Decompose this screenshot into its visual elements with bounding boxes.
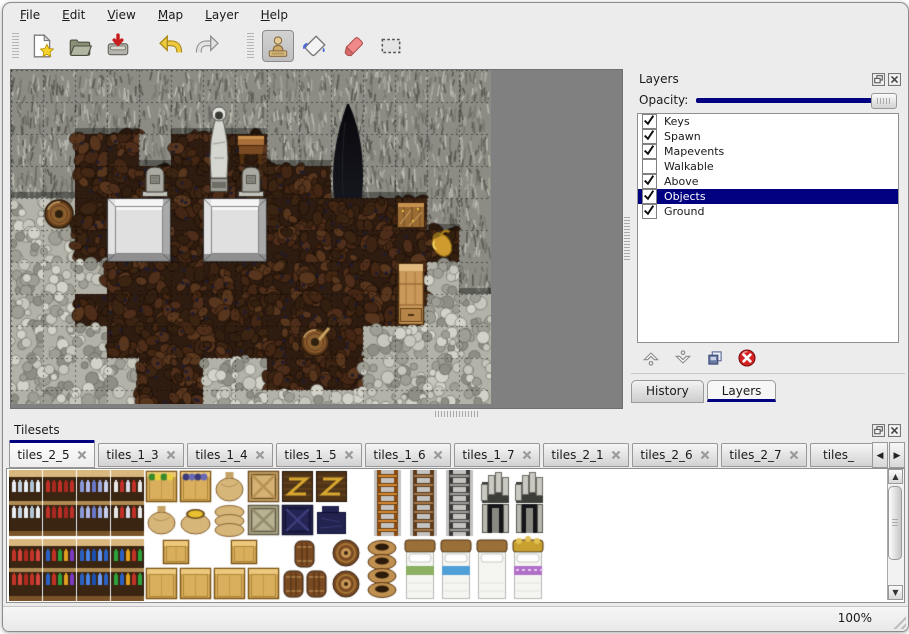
close-icon[interactable] — [888, 424, 901, 437]
select-tool-button[interactable] — [376, 30, 408, 62]
tab-close-icon[interactable] — [700, 450, 710, 460]
eraser-tool-icon — [340, 33, 368, 59]
eraser-tool-button[interactable] — [338, 30, 370, 62]
layer-row-spawn[interactable]: Spawn — [638, 129, 898, 144]
tilesets-panel: Tilesets tiles_2_5tiles_1_3tiles_1_4tile… — [6, 420, 905, 607]
float-icon[interactable] — [872, 73, 885, 86]
tab-label: tiles_1_7 — [462, 448, 514, 462]
scroll-tabs-right-icon[interactable]: ▶ — [889, 442, 905, 468]
tab-label: tiles_2_6 — [640, 448, 692, 462]
resize-grip[interactable] — [889, 612, 906, 629]
tab-close-icon[interactable] — [789, 450, 799, 460]
toolbar-grip[interactable] — [12, 33, 19, 59]
tileset-tab-tiles_1_5[interactable]: tiles_1_5 — [276, 443, 362, 467]
fill-tool-button[interactable] — [300, 30, 332, 62]
tab-close-icon[interactable] — [611, 450, 621, 460]
tab-close-icon[interactable] — [522, 450, 532, 460]
opacity-slider-track[interactable] — [696, 98, 893, 103]
tab-close-icon[interactable] — [344, 450, 354, 460]
undo-button[interactable] — [155, 30, 187, 62]
save-button[interactable] — [103, 30, 135, 62]
opacity-slider-handle[interactable] — [871, 93, 897, 109]
layer-name: Walkable — [664, 160, 714, 173]
menu-view[interactable]: View — [96, 5, 146, 25]
layer-name: Spawn — [664, 130, 701, 143]
scroll-down-icon[interactable]: ▼ — [888, 585, 903, 600]
tab-label: tiles_2_5 — [17, 448, 69, 462]
tab-close-icon[interactable] — [255, 450, 265, 460]
opacity-label: Opacity: — [639, 93, 688, 107]
layer-row-keys[interactable]: Keys — [638, 114, 898, 129]
stamp-tool-button[interactable] — [262, 30, 294, 62]
tileset-tab-tiles_1_6[interactable]: tiles_1_6 — [365, 443, 451, 467]
layer-buttons — [631, 343, 905, 374]
layer-visibility-checkbox[interactable] — [642, 174, 657, 189]
move-layer-down-icon — [673, 348, 693, 368]
layer-name: Above — [664, 175, 699, 188]
horizontal-splitter-grip[interactable] — [435, 411, 479, 417]
layer-visibility-checkbox[interactable] — [642, 114, 657, 129]
menu-bar: FileEditViewMapLayerHelp — [3, 3, 908, 27]
open-folder-icon — [67, 33, 95, 59]
tileset-tab-tiles_1_4[interactable]: tiles_1_4 — [187, 443, 273, 467]
scroll-up-icon[interactable]: ▲ — [888, 469, 903, 484]
tab-close-icon[interactable] — [77, 450, 87, 460]
new-file-button[interactable] — [27, 30, 59, 62]
open-folder-button[interactable] — [65, 30, 97, 62]
tileset-tab-tiles[interactable]: tiles_ — [810, 443, 874, 467]
tileset-tab-tiles_2_7[interactable]: tiles_2_7 — [721, 443, 807, 467]
layer-visibility-checkbox[interactable] — [642, 144, 657, 159]
tab-close-icon[interactable] — [166, 450, 176, 460]
fill-tool-icon — [302, 33, 330, 59]
new-file-icon — [29, 33, 57, 59]
layer-visibility-checkbox[interactable] — [642, 204, 657, 219]
redo-icon — [195, 33, 223, 59]
layer-row-ground[interactable]: Ground — [638, 204, 898, 219]
scrollbar-thumb[interactable] — [888, 486, 902, 560]
opacity-slider[interactable] — [696, 93, 897, 107]
menu-map[interactable]: Map — [147, 5, 194, 25]
vertical-splitter[interactable] — [623, 69, 631, 409]
tileset-tab-tiles_2_6[interactable]: tiles_2_6 — [632, 443, 718, 467]
layer-visibility-checkbox[interactable] — [642, 129, 657, 144]
tilesets-panel-header: Tilesets — [6, 420, 905, 440]
layers-panel-header: Layers — [631, 69, 905, 89]
layer-visibility-checkbox[interactable] — [642, 159, 657, 174]
tab-label: tiles_ — [823, 448, 854, 462]
layer-row-objects[interactable]: Objects — [638, 189, 898, 204]
opacity-row: Opacity: — [631, 89, 905, 111]
layers-panel-title: Layers — [639, 72, 869, 86]
dock-tab-history[interactable]: History — [631, 380, 704, 403]
tab-label: tiles_1_5 — [284, 448, 336, 462]
layer-name: Objects — [664, 190, 706, 203]
tab-label: tiles_1_4 — [195, 448, 247, 462]
redo-button[interactable] — [193, 30, 225, 62]
tileset-tab-tiles_2_5[interactable]: tiles_2_5 — [9, 440, 95, 468]
duplicate-layer-icon — [705, 348, 725, 368]
tileset-tab-tiles_1_3[interactable]: tiles_1_3 — [98, 443, 184, 467]
stamp-tool-icon — [265, 33, 291, 59]
close-icon[interactable] — [888, 73, 901, 86]
tab-label: tiles_1_3 — [106, 448, 158, 462]
map-view[interactable] — [10, 69, 623, 409]
layer-row-walkable[interactable]: Walkable — [638, 159, 898, 174]
menu-edit[interactable]: Edit — [51, 5, 96, 25]
layer-row-above[interactable]: Above — [638, 174, 898, 189]
undo-icon — [157, 33, 185, 59]
tilesets-panel-title: Tilesets — [14, 423, 869, 437]
menu-layer[interactable]: Layer — [194, 5, 249, 25]
dock-tab-layers[interactable]: Layers — [707, 380, 777, 402]
delete-layer-button[interactable] — [735, 346, 759, 370]
move-layer-up-icon — [641, 348, 661, 368]
layer-list: KeysSpawnMapeventsWalkableAboveObjectsGr… — [637, 113, 899, 343]
dock-tabs: HistoryLayers — [631, 374, 905, 403]
move-layer-down-button[interactable] — [671, 346, 695, 370]
menu-file[interactable]: File — [9, 5, 51, 25]
move-layer-up-button[interactable] — [639, 346, 663, 370]
tab-close-icon[interactable] — [433, 450, 443, 460]
scroll-tabs-left-icon[interactable]: ◀ — [872, 442, 888, 468]
tab-label: tiles_1_6 — [373, 448, 425, 462]
tab-label: tiles_2_7 — [729, 448, 781, 462]
layer-visibility-checkbox[interactable] — [642, 189, 657, 204]
tileset-scrollbar[interactable]: ▲ ▼ — [887, 469, 904, 600]
toolbar-grip[interactable] — [247, 33, 254, 59]
tileset-canvas[interactable] — [9, 470, 885, 601]
app-window: FileEditViewMapLayerHelp Layers Opacity:… — [2, 2, 909, 632]
zoom-level: 100% — [838, 611, 872, 625]
float-icon[interactable] — [872, 424, 885, 437]
tileset-tab-bar: tiles_2_5tiles_1_3tiles_1_4tiles_1_5tile… — [6, 440, 905, 468]
save-icon — [105, 33, 133, 59]
layer-name: Ground — [664, 205, 704, 218]
duplicate-layer-button[interactable] — [703, 346, 727, 370]
toolbar — [3, 27, 908, 65]
layers-dock: Layers Opacity: KeysSpawnMapeventsWalkab… — [631, 69, 905, 415]
layer-name: Mapevents — [664, 145, 724, 158]
tab-label: tiles_2_1 — [551, 448, 603, 462]
layer-row-mapevents[interactable]: Mapevents — [638, 144, 898, 159]
menu-help[interactable]: Help — [250, 5, 299, 25]
tileset-tab-tiles_1_7[interactable]: tiles_1_7 — [454, 443, 540, 467]
layer-name: Keys — [664, 115, 690, 128]
tileset-content: ▲ ▼ — [6, 468, 905, 603]
tileset-tab-tiles_2_1[interactable]: tiles_2_1 — [543, 443, 629, 467]
delete-layer-icon — [737, 348, 757, 368]
status-bar: 100% — [3, 606, 908, 631]
splitter-grip-dots — [624, 217, 630, 261]
map-canvas[interactable] — [11, 70, 491, 404]
select-tool-icon — [378, 33, 406, 59]
